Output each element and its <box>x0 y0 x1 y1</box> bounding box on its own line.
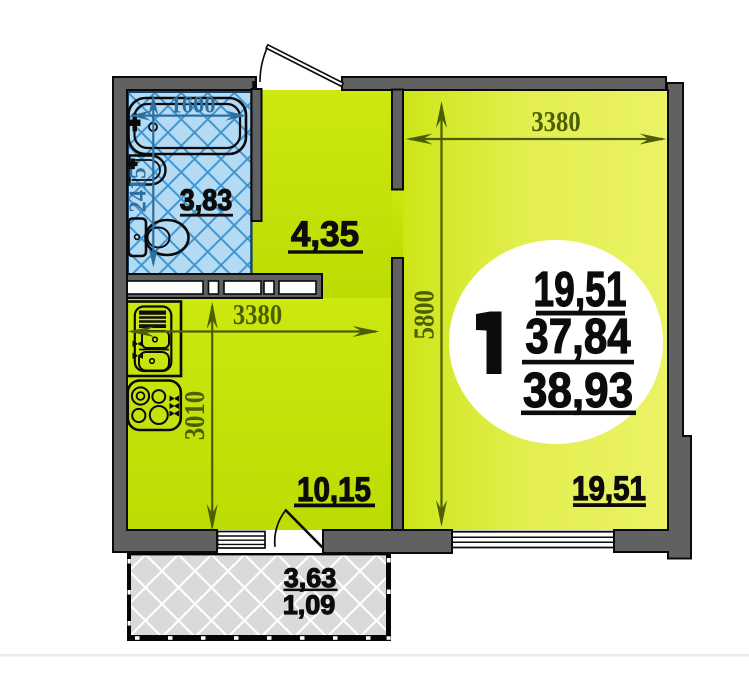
svg-text:2415: 2415 <box>125 167 152 212</box>
svg-text:1600: 1600 <box>170 92 215 119</box>
svg-text:3380: 3380 <box>531 107 580 138</box>
svg-text:3010: 3010 <box>180 391 211 440</box>
svg-text:19,51: 19,51 <box>572 469 646 507</box>
svg-text:1,09: 1,09 <box>283 590 336 620</box>
svg-text:3,83: 3,83 <box>180 184 233 218</box>
svg-text:37,84: 37,84 <box>525 309 631 364</box>
svg-text:3380: 3380 <box>233 300 282 331</box>
svg-text:10,15: 10,15 <box>297 470 371 508</box>
svg-text:4,35: 4,35 <box>291 215 359 254</box>
svg-text:5800: 5800 <box>409 290 440 339</box>
svg-text:38,93: 38,93 <box>523 363 633 418</box>
svg-text:3,63: 3,63 <box>284 563 337 593</box>
